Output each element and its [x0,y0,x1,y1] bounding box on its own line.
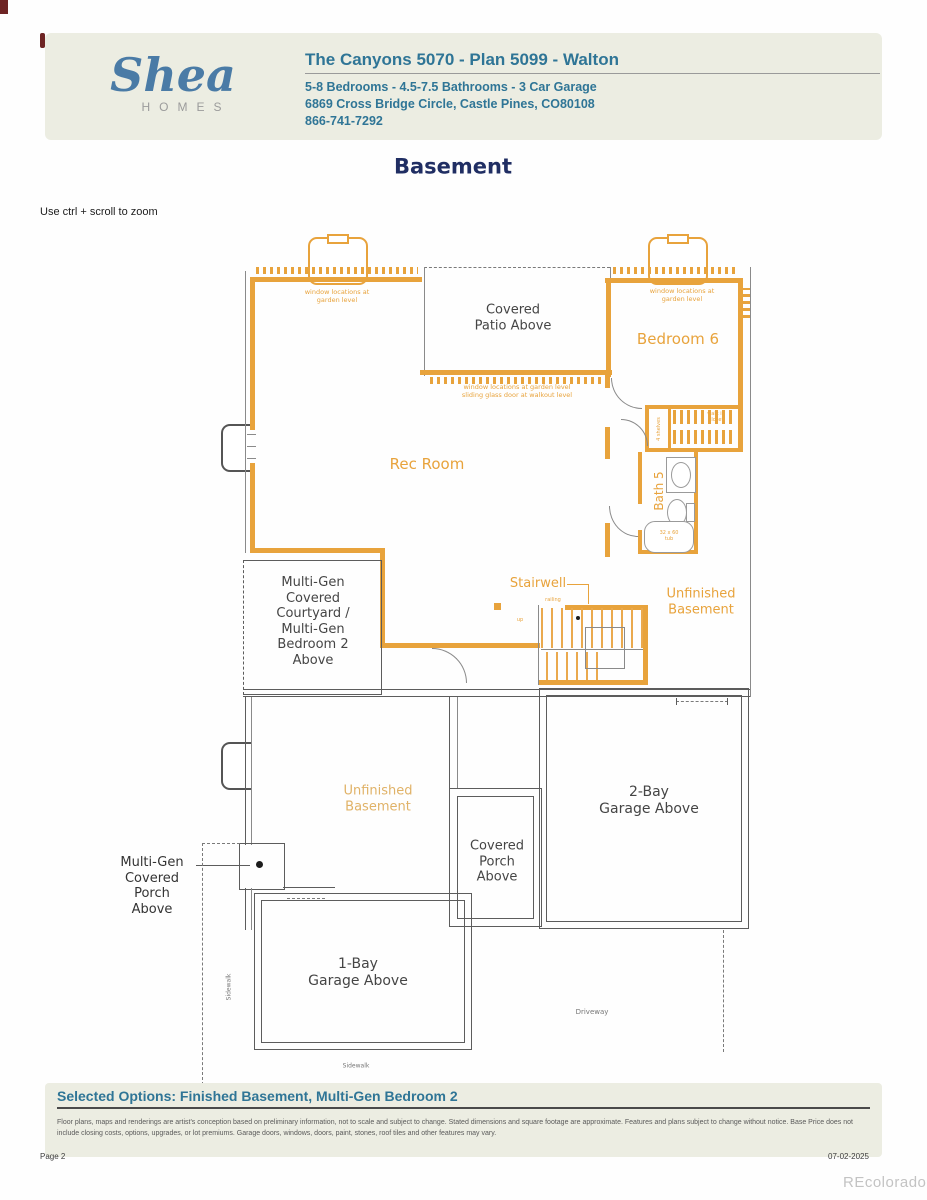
plan-graphic [605,375,610,388]
plan-graphic [638,452,642,504]
plan-graphic [327,234,349,244]
plan-graphic [606,280,611,377]
recolorado-watermark: REcolorado [843,1174,926,1191]
plan-graphic [424,267,610,268]
plan-graphic [245,271,246,553]
plan-graphic [196,865,250,866]
plan-graphic [673,430,735,444]
label-tub: 32 x 60 tub [660,530,679,542]
label-sidewalk-vertical: Sidewalk [225,974,232,1001]
plan-graphic [673,410,735,424]
plan-graphic [245,888,246,930]
window-note-left: window locations at garden level [305,289,370,305]
plan-graphic [585,627,625,669]
label-covered-porch: Covered Porch Above [470,839,524,886]
label-rec-room: Rec Room [390,455,465,473]
plan-graphic [420,370,612,375]
plan-graphic [247,434,256,435]
plan-graphic [457,697,458,788]
label-multigen-porch: Multi-Gen Covered Porch Above [120,855,183,917]
window-note-patio: window locations at garden level sliding… [462,384,572,400]
plan-graphic [250,548,385,553]
plan-graphic [202,843,240,844]
plan-graphic [247,446,256,447]
plan-graphic [424,267,425,376]
label-stairwell: Stairwell [510,576,566,592]
plan-graphic [723,930,724,1052]
label-up: up [517,617,523,623]
plan-graphic [668,405,671,452]
plan-graphic [538,605,539,685]
plan-graphic [538,680,648,685]
plan-graphic [609,506,638,537]
plan-graphic [738,278,743,452]
label-walk-in-closet: walk in closet [707,411,725,423]
plan-graphic [611,378,642,409]
plan-graphic [643,605,648,685]
footer-date: 07-02-2025 [828,1152,869,1161]
plan-graphic [645,448,740,452]
plan-graphic [256,267,418,274]
plan-graphic [380,643,540,648]
plan-graphic [250,277,422,282]
label-garage-2bay: 2-Bay Garage Above [599,784,699,818]
plan-graphic [567,584,588,585]
plan-graphic [621,419,648,446]
plan-graphic [247,458,256,459]
plan-graphic [667,234,689,244]
label-bedroom6: Bedroom 6 [637,330,719,348]
plan-graphic [245,697,246,845]
plan-graphic [251,888,252,930]
floorplan-drawing: Covered Patio Above Bedroom 6 Rec Room w… [0,0,927,1200]
page-number: Page 2 [40,1152,65,1161]
plan-graphic [750,267,751,697]
floorplan-page: Shea HOMES The Canyons 5070 - Plan 5099 … [0,0,927,1200]
label-shelves: 4 shelves [656,417,662,441]
plan-graphic [57,1107,870,1109]
plan-graphic [727,698,728,705]
plan-graphic [671,462,691,488]
label-unfinished-basement-right: Unfinished Basement [666,586,735,617]
plan-graphic [676,698,677,705]
label-sidewalk-bottom: Sidewalk [343,1062,370,1069]
plan-graphic [432,648,467,683]
disclaimer: Floor plans, maps and renderings are art… [57,1118,869,1140]
plan-graphic [686,503,695,522]
plan-graphic [743,288,750,318]
label-garage-1bay: 1-Bay Garage Above [308,956,408,990]
window-note-right: window locations at garden level [650,288,715,304]
plan-graphic [613,267,735,274]
plan-graphic [676,701,728,702]
plan-graphic [250,277,255,430]
plan-graphic [605,427,610,459]
plan-graphic [494,603,501,610]
label-covered-patio: Covered Patio Above [475,302,552,333]
porch-marker-dot [256,861,263,868]
plan-graphic [251,697,252,845]
plan-graphic [605,523,610,557]
plan-graphic [250,463,255,553]
plan-graphic [202,843,203,1085]
label-bath5: Bath 5 [652,471,666,510]
plan-graphic [588,584,589,604]
label-multigen-courtyard: Multi-Gen Covered Courtyard / Multi-Gen … [276,575,349,669]
plan-graphic [576,616,580,620]
window-well [221,742,251,790]
plan-graphic [283,887,335,888]
plan-graphic [645,405,740,409]
selected-options: Selected Options: Finished Basement, Mul… [57,1088,458,1104]
plan-graphic [449,697,450,788]
label-driveway: Driveway [576,1008,609,1016]
label-unfinished-basement-left: Unfinished Basement [343,783,412,814]
label-railing: railing [545,597,561,603]
plan-graphic [605,278,743,283]
window-well [221,424,251,472]
